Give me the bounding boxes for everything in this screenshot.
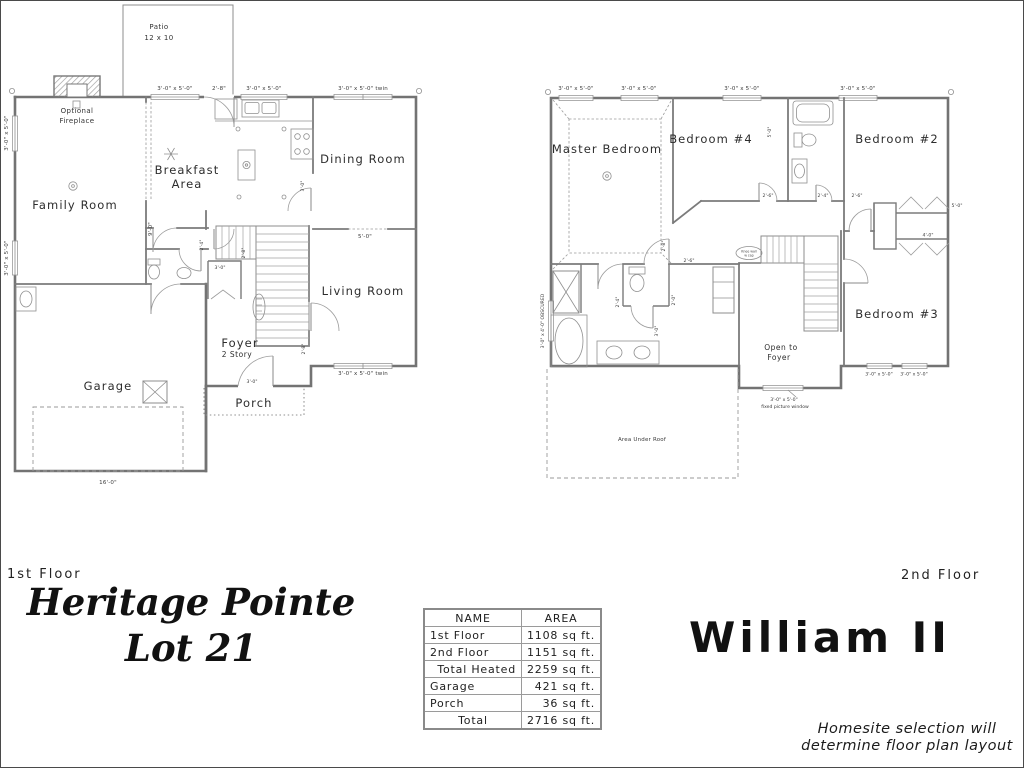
- dim-label: 3'-0" x 5'-0": [246, 86, 281, 92]
- toilet-tank: [148, 259, 160, 265]
- dim-label: 3'-0" x 5'-0": [558, 86, 593, 92]
- sink: [177, 268, 191, 279]
- dim-label: 5'-0": [358, 234, 372, 240]
- stairs-second-floor: Knee wall w cap: [736, 236, 838, 331]
- note-label: w cap: [744, 254, 753, 258]
- room-label-bedroom3: Bedroom #3: [855, 307, 939, 321]
- community-name: Heritage Pointe: [21, 579, 361, 625]
- ceiling-light-icon: [69, 182, 77, 190]
- dim-label: 2'-6": [852, 193, 863, 199]
- row-name: Total Heated: [424, 661, 522, 678]
- toilet: [802, 134, 816, 146]
- second-floor-tag: 2nd Floor: [901, 568, 980, 583]
- room-label-foyer-sub: 2 Story: [222, 350, 253, 359]
- table-row: 1st Floor 1108 sq ft.: [424, 627, 601, 644]
- dim-label: 3'-0" x 5'-0": [621, 86, 656, 92]
- toilet-tank: [794, 133, 802, 147]
- row-name: Total: [424, 712, 522, 730]
- dim-label: 3'-0" x 5'-0": [865, 372, 892, 378]
- room-label-breakfast: Breakfast: [155, 163, 220, 177]
- room-label-breakfast2: Area: [172, 177, 203, 191]
- sink: [795, 164, 805, 178]
- toilet-tank: [629, 267, 645, 274]
- recessed-light-icon: [282, 195, 286, 199]
- dim-label: 2'-4": [818, 193, 829, 199]
- toilet: [149, 265, 160, 279]
- kitchen-island: [238, 150, 255, 180]
- recessed-light-icon: [282, 127, 286, 131]
- note-label: 3'-0" x 5'-0": [770, 397, 797, 403]
- room-label-open-foyer2: Foyer: [767, 353, 791, 362]
- row-name: Garage: [424, 678, 522, 695]
- dim-label: 3'-0" x 5'-0": [840, 86, 875, 92]
- row-area: 2259 sq ft.: [522, 661, 602, 678]
- dim-label: 5'-0": [767, 127, 773, 138]
- window-dim-labels-sf: 3'-0" x 5'-0" 3'-0" x 5'-0" 3'-0" x 5'-0…: [540, 86, 928, 378]
- dim-label: 9'-0": [148, 222, 154, 236]
- interior-dims-ff: 5'-0" 9'-0" 3'-0" 2'-8" 2'-4" 2'-8" 3'-0…: [148, 181, 372, 385]
- downspout-icon: [9, 88, 14, 93]
- col-header-name: NAME: [424, 609, 522, 627]
- bathtub: [793, 101, 833, 125]
- area-table-header-row: NAME AREA: [424, 609, 601, 627]
- area-under-roof-label: Area Under Roof: [618, 437, 667, 443]
- dim-label: 4'-0": [923, 233, 934, 239]
- dim-label: 3'-0" x 5'-0": [724, 86, 759, 92]
- dim-label: 2'-6": [684, 258, 695, 264]
- note-label: fixed picture window: [761, 404, 809, 410]
- floor-plan-sheet: Patio 12 x 10 Optional Fireplace: [0, 0, 1024, 768]
- dim-label: 2'-8": [241, 248, 247, 259]
- garden-tub: [551, 315, 587, 367]
- dim-label: 2'-0": [671, 295, 677, 306]
- area-table: NAME AREA 1st Floor 1108 sq ft. 2nd Floo…: [423, 608, 602, 730]
- row-name: Porch: [424, 695, 522, 712]
- community-title: Heritage Pointe Lot 21: [21, 579, 361, 672]
- row-area: 2716 sq ft.: [522, 712, 602, 730]
- room-label-foyer: Foyer: [221, 336, 258, 350]
- knee-wall-note: Knee wall w cap: [736, 247, 762, 260]
- dim-label: 16'-0": [99, 480, 117, 486]
- room-label-porch: Porch: [235, 396, 272, 410]
- room-label-bedroom4: Bedroom #4: [669, 132, 753, 146]
- row-area: 36 sq ft.: [522, 695, 602, 712]
- col-header-area: AREA: [522, 609, 602, 627]
- row-area: 1151 sq ft.: [522, 644, 602, 661]
- recessed-light-icon: [236, 127, 240, 131]
- dim-label: 5'-0": [952, 203, 963, 209]
- dim-label: 3'-0": [247, 379, 258, 385]
- dim-label: 3'-0": [300, 181, 306, 192]
- dim-label: 3'-0" x 5'-0" twin: [338, 86, 388, 92]
- dim-label: 3'-0" x 5'-0": [900, 372, 927, 378]
- row-name: 1st Floor: [424, 627, 522, 644]
- kitchen-fixtures: [215, 99, 313, 199]
- fireplace: Optional Fireplace: [54, 76, 100, 125]
- stairs-first-floor: [216, 226, 309, 346]
- plan-name-title: William II: [689, 613, 951, 662]
- room-label-garage: Garage: [84, 379, 133, 393]
- chase-shaft: [874, 203, 896, 249]
- room-label-open-foyer: Open to: [764, 343, 797, 352]
- downspout-icon: [948, 89, 953, 94]
- hall-bath-fixtures: [792, 101, 833, 183]
- row-name: 2nd Floor: [424, 644, 522, 661]
- lot-number: Lot 21: [21, 625, 361, 671]
- disclaimer-line1: Homesite selection will: [791, 721, 1023, 738]
- patio-outline: Patio 12 x 10: [123, 5, 233, 97]
- fireplace-label2: Fireplace: [60, 117, 95, 125]
- fireplace-label: Optional: [61, 107, 94, 115]
- interior-walls-ff: [15, 97, 416, 346]
- table-row: 2nd Floor 1151 sq ft.: [424, 644, 601, 661]
- dim-label: 3'-0" x 4'-0" OBSCURED: [540, 293, 546, 348]
- linen-closet: [713, 267, 734, 313]
- dim-label: 2'-8": [212, 86, 226, 92]
- table-row: Porch 36 sq ft.: [424, 695, 601, 712]
- tray-ceiling: [553, 100, 671, 269]
- first-floor-plan: Patio 12 x 10 Optional Fireplace: [4, 5, 422, 486]
- dim-label: 3'-0" x 5'-0": [157, 86, 192, 92]
- master-bath-fixtures: [551, 267, 734, 367]
- dim-label: 3'-0": [654, 326, 660, 337]
- dim-label: 2'-6": [763, 193, 774, 199]
- dim-label: 3'-0" x 5'-0": [4, 115, 10, 150]
- area-under-roof-outline: Area Under Roof: [547, 369, 738, 478]
- row-area: 1108 sq ft.: [522, 627, 602, 644]
- table-row: Total Heated 2259 sq ft.: [424, 661, 601, 678]
- downspout-icon: [416, 88, 421, 93]
- room-label-family: Family Room: [32, 198, 118, 212]
- table-row: Garage 421 sq ft.: [424, 678, 601, 695]
- recessed-light-icon: [237, 195, 241, 199]
- room-label-master: Master Bedroom: [552, 142, 662, 156]
- powder-room-fixtures: [148, 259, 191, 279]
- table-row: Total 2716 sq ft.: [424, 712, 601, 730]
- kitchen-sink: [242, 100, 279, 117]
- patio-size-label: 12 x 10: [144, 34, 173, 42]
- second-floor-plan: 3'-0" x 5'-0" 3'-0" x 5'-0" 3'-0" x 5'-0…: [540, 86, 962, 478]
- disclaimer-line2: determine floor plan layout: [791, 738, 1023, 755]
- dim-label: 3'-0" x 5'-0": [4, 240, 10, 275]
- dim-label: 2'-4": [615, 297, 621, 308]
- patio-label: Patio: [149, 23, 168, 31]
- downspout-icon: [545, 89, 550, 94]
- room-label-living: Living Room: [322, 284, 405, 298]
- ceiling-fan-icon: [164, 148, 178, 160]
- dim-label: 2'-4": [199, 240, 205, 251]
- room-label-dining: Dining Room: [320, 152, 406, 166]
- shower: [553, 271, 579, 313]
- row-area: 421 sq ft.: [522, 678, 602, 695]
- stove: [291, 129, 313, 159]
- dim-label: 2'-8": [661, 241, 667, 252]
- ceiling-symbols-sf: [603, 172, 611, 180]
- fixed-window-note: 3'-0" x 5'-0" fixed picture window: [761, 390, 809, 410]
- dim-label: 2'-8": [301, 344, 307, 355]
- toilet: [630, 275, 644, 292]
- room-label-bedroom2: Bedroom #2: [855, 132, 939, 146]
- double-vanity: [597, 341, 659, 364]
- disclaimer-note: Homesite selection will determine floor …: [791, 721, 1023, 755]
- garage-door-dashed: [33, 407, 183, 471]
- dim-label: 3'-0" x 5'-0" twin: [338, 371, 388, 377]
- attic-access: [143, 381, 167, 403]
- ceiling-light-icon: [603, 172, 611, 180]
- closet-doors-sf: 5'-0" 4'-0": [899, 197, 962, 255]
- dim-label: 3'-0": [215, 265, 226, 271]
